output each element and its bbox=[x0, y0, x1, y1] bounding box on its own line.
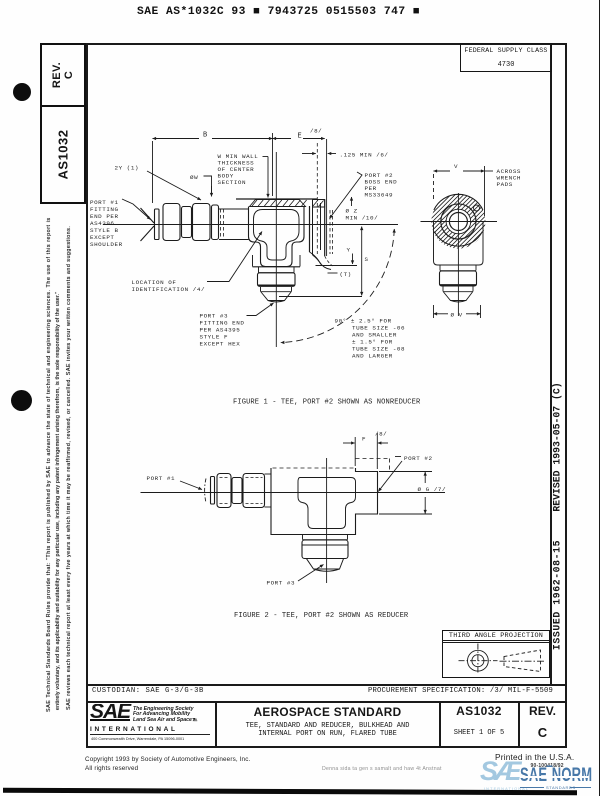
svg-text:FITTING: FITTING bbox=[90, 206, 119, 213]
svg-text:Ø Z: Ø Z bbox=[346, 208, 358, 215]
svg-text:EXCEPT HEX: EXCEPT HEX bbox=[200, 341, 241, 348]
svg-text:(T): (T) bbox=[340, 271, 352, 278]
svg-text:LOCATION OF: LOCATION OF bbox=[132, 279, 177, 286]
svg-text:IDENTIFICATION /4/: IDENTIFICATION /4/ bbox=[132, 286, 206, 293]
svg-text:PORT #1: PORT #1 bbox=[90, 199, 119, 206]
svg-text:F: F bbox=[362, 436, 366, 443]
svg-text:AND LARGER: AND LARGER bbox=[352, 353, 393, 360]
svg-text:Y: Y bbox=[347, 247, 351, 254]
svg-text:2Y (1): 2Y (1) bbox=[115, 165, 140, 172]
svg-text:PORT #1: PORT #1 bbox=[147, 475, 176, 482]
svg-text:PORT #3: PORT #3 bbox=[267, 579, 296, 586]
svg-text:TUBE SIZE -08: TUBE SIZE -08 bbox=[352, 346, 405, 353]
svg-text:.125 MIN /6/: .125 MIN /6/ bbox=[340, 152, 389, 159]
svg-text:E: E bbox=[298, 133, 302, 141]
svg-text:PORT #3: PORT #3 bbox=[200, 313, 229, 320]
svg-text:FITTING END: FITTING END bbox=[200, 320, 245, 327]
svg-text:B: B bbox=[203, 132, 207, 140]
svg-text:90° ± 2.5° FOR: 90° ± 2.5° FOR bbox=[335, 318, 392, 325]
svg-text:/8/: /8/ bbox=[375, 431, 387, 438]
svg-text:ØW: ØW bbox=[190, 174, 198, 181]
svg-text:PORT #2: PORT #2 bbox=[404, 455, 433, 462]
svg-text:SHOULDER: SHOULDER bbox=[90, 241, 123, 248]
svg-text:/8/: /8/ bbox=[310, 128, 322, 135]
svg-text:END PER: END PER bbox=[90, 213, 119, 220]
svg-text:AS4396: AS4396 bbox=[90, 220, 115, 227]
svg-text:MIN /10/: MIN /10/ bbox=[346, 215, 379, 222]
svg-text:± 1.5° FOR: ± 1.5° FOR bbox=[352, 339, 393, 346]
svg-text:MS33649: MS33649 bbox=[365, 192, 394, 199]
svg-text:Ø V: Ø V bbox=[451, 311, 463, 318]
svg-text:AND SMALLER: AND SMALLER bbox=[352, 332, 397, 339]
svg-text:PER AS4395: PER AS4395 bbox=[200, 327, 241, 334]
svg-text:FIGURE 1 - TEE, PORT #2 SHOWN: FIGURE 1 - TEE, PORT #2 SHOWN AS NONREDU… bbox=[233, 399, 421, 407]
svg-text:PADS: PADS bbox=[497, 181, 513, 188]
svg-text:TUBE SIZE -06: TUBE SIZE -06 bbox=[352, 325, 405, 332]
svg-text:STYLE B: STYLE B bbox=[90, 227, 119, 234]
svg-text:STYLE F: STYLE F bbox=[200, 334, 229, 341]
svg-text:S: S bbox=[365, 256, 369, 263]
svg-text:FIGURE 2 - TEE, PORT #2 SHOWN: FIGURE 2 - TEE, PORT #2 SHOWN AS REDUCER bbox=[234, 612, 409, 620]
svg-text:EXCEPT: EXCEPT bbox=[90, 234, 115, 241]
svg-text:V: V bbox=[454, 163, 458, 170]
svg-text:SECTION: SECTION bbox=[218, 179, 247, 186]
svg-text:Ø G /7/: Ø G /7/ bbox=[418, 486, 447, 493]
